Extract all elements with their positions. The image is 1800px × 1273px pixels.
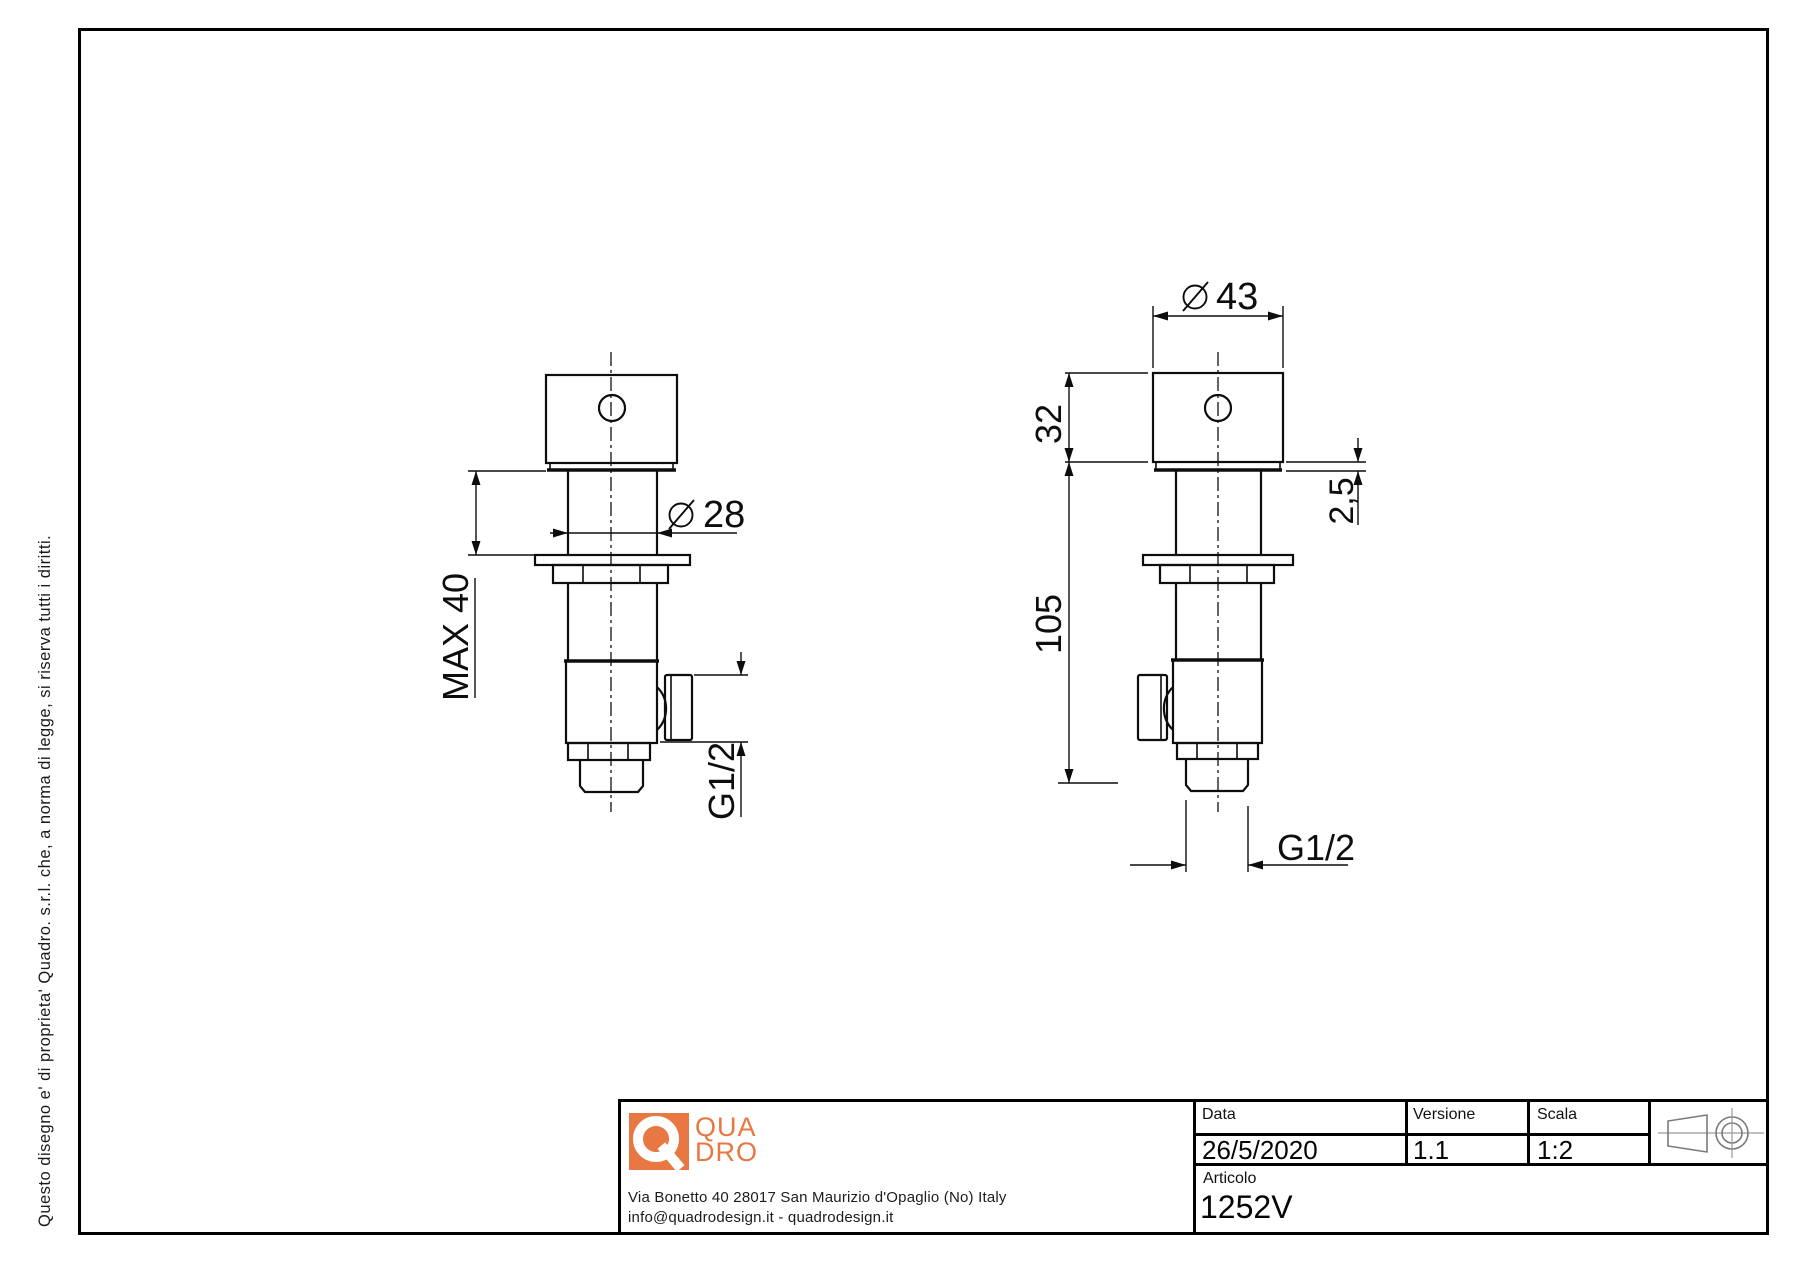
titleblock-sep-logo	[1193, 1102, 1196, 1232]
field-versione-label: Versione	[1413, 1106, 1475, 1124]
title-block: QUA DRO Via Bonetto 40 28017 San Maurizi…	[618, 1099, 1769, 1235]
company-contacts: info@quadrodesign.it - quadrodesign.it	[628, 1209, 894, 1226]
logo-wordmark: QUA DRO	[695, 1115, 758, 1165]
field-articolo-value: 1252V	[1200, 1189, 1293, 1226]
field-data-label: Data	[1202, 1106, 1236, 1124]
field-versione-value: 1.1	[1413, 1135, 1449, 1166]
logo-line2: DRO	[695, 1140, 758, 1165]
copyright-note: Questo disegno e' di proprieta' Quadro. …	[36, 427, 55, 1227]
field-scala-label: Scala	[1537, 1106, 1577, 1124]
page-border	[78, 28, 1769, 1235]
company-address: Via Bonetto 40 28017 San Maurizio d'Opag…	[628, 1189, 1007, 1206]
quadro-logo-icon	[629, 1113, 689, 1170]
field-scala-value: 1:2	[1537, 1135, 1573, 1166]
drawing-sheet: Questo disegno e' di proprieta' Quadro. …	[0, 0, 1800, 1273]
field-articolo-label: Articolo	[1203, 1170, 1256, 1188]
field-data-value: 26/5/2020	[1202, 1135, 1318, 1166]
